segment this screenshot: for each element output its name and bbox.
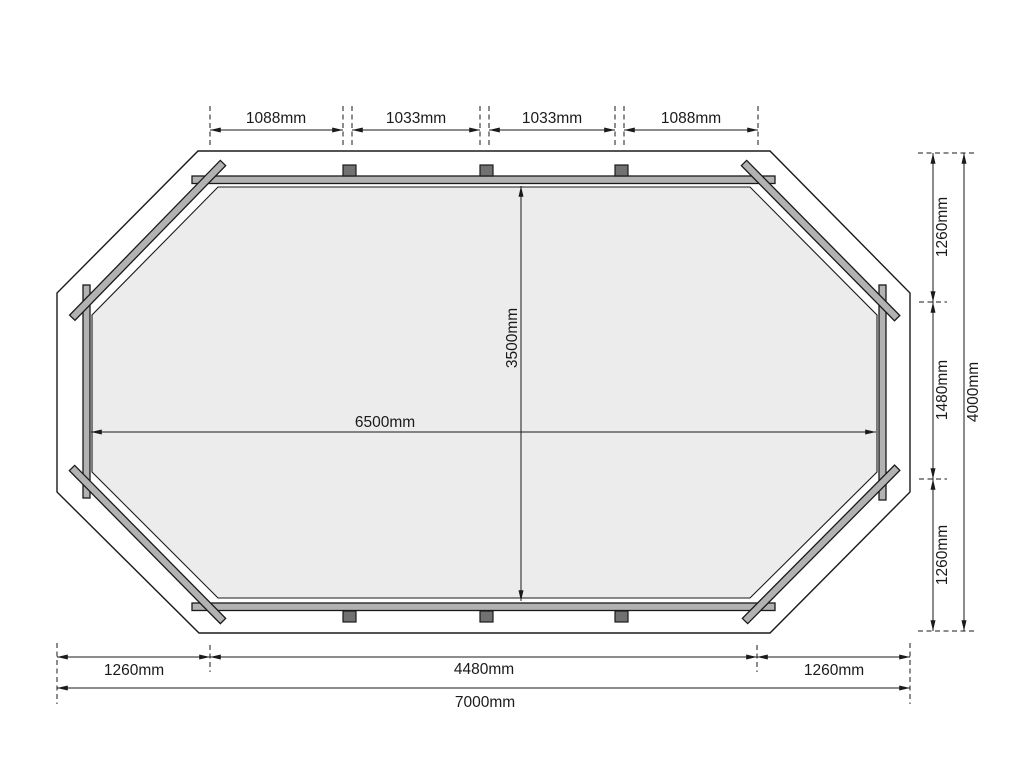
dimension-label-top-1: 1088mm xyxy=(246,110,306,127)
dimension-label-bottom-total: 7000mm xyxy=(455,694,515,711)
post-top-3 xyxy=(615,165,628,176)
top-dimensions: 1088mm 1033mm 1033mm 1088mm xyxy=(210,106,758,145)
post-bottom-1 xyxy=(343,611,356,622)
right-dimensions: 1260mm 1480mm 1260mm 4000mm xyxy=(918,153,982,631)
octagon-structure xyxy=(57,151,910,633)
plank-bottom xyxy=(192,603,775,611)
bottom-dimensions: 1260mm 4480mm 1260mm 7000mm xyxy=(57,643,910,711)
dimension-label-bottom-1: 1260mm xyxy=(104,662,164,679)
post-bottom-2 xyxy=(480,611,493,622)
dimension-label-right-3: 1260mm xyxy=(934,525,951,585)
floor-width-label: 6500mm xyxy=(355,414,415,431)
floor-area xyxy=(92,187,877,598)
dimension-label-bottom-3: 1260mm xyxy=(804,662,864,679)
dimension-label-bottom-2: 4480mm xyxy=(454,661,514,678)
plank-right xyxy=(879,285,886,500)
dimension-label-right-2: 1480mm xyxy=(934,360,951,420)
post-top-1 xyxy=(343,165,356,176)
plank-left xyxy=(83,285,90,498)
dimension-label-right-1: 1260mm xyxy=(934,197,951,257)
plank-top xyxy=(192,176,775,184)
post-top-2 xyxy=(480,165,493,176)
floor-height-label: 3500mm xyxy=(504,308,521,368)
dimension-label-top-4: 1088mm xyxy=(661,110,721,127)
post-bottom-3 xyxy=(615,611,628,622)
dimension-label-right-total: 4000mm xyxy=(965,362,982,422)
dimension-label-top-3: 1033mm xyxy=(522,110,582,127)
dimension-label-top-2: 1033mm xyxy=(386,110,446,127)
octagon-dimension-drawing: 6500mm 3500mm 1088mm 10 xyxy=(0,0,1024,768)
technical-drawing-canvas: 6500mm 3500mm 1088mm 10 xyxy=(0,0,1024,768)
